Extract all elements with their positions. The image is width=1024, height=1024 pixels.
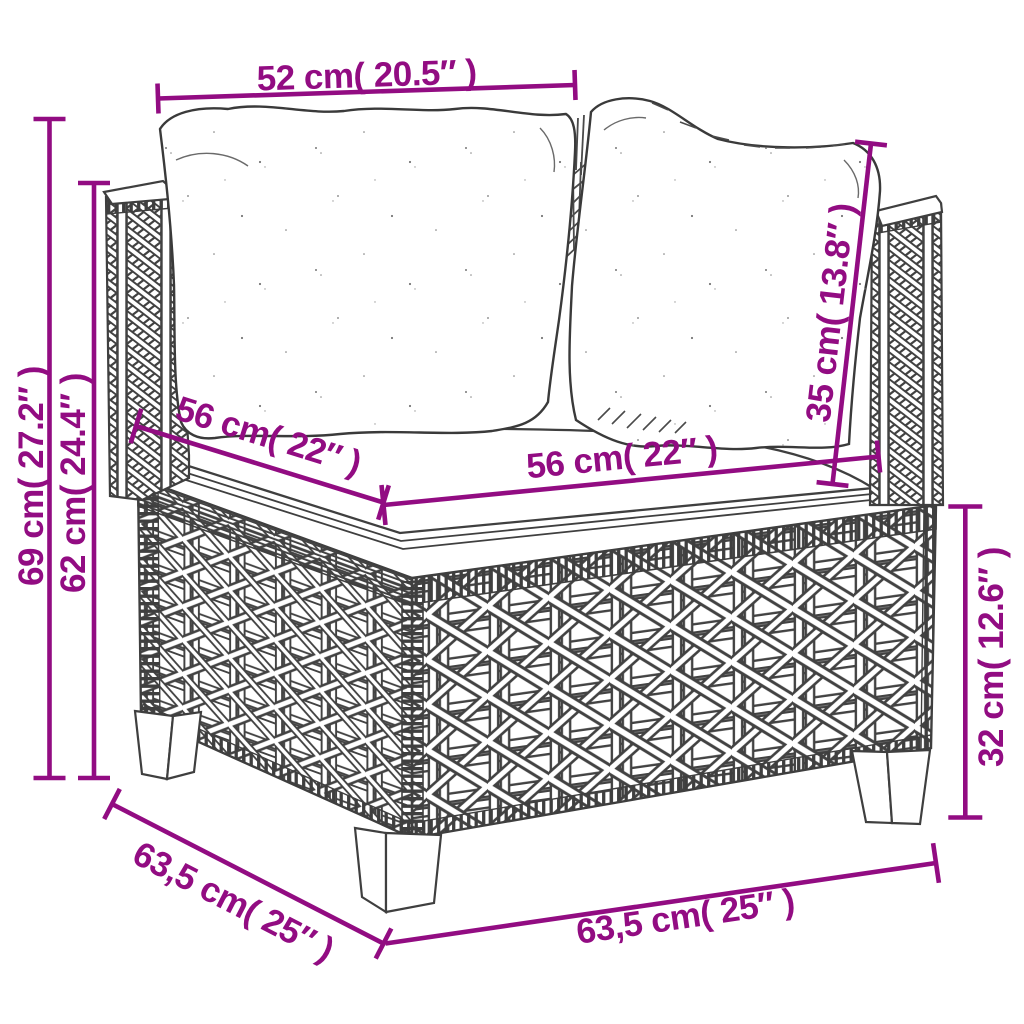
svg-text:52 cm( 20.5″ ): 52 cm( 20.5″ ) — [256, 52, 477, 98]
svg-text:32 cm( 12.6″ ): 32 cm( 12.6″ ) — [972, 547, 1011, 767]
svg-text:62 cm( 24.4″ ): 62 cm( 24.4″ ) — [54, 373, 93, 593]
svg-text:69 cm( 27.2″ ): 69 cm( 27.2″ ) — [12, 366, 51, 586]
